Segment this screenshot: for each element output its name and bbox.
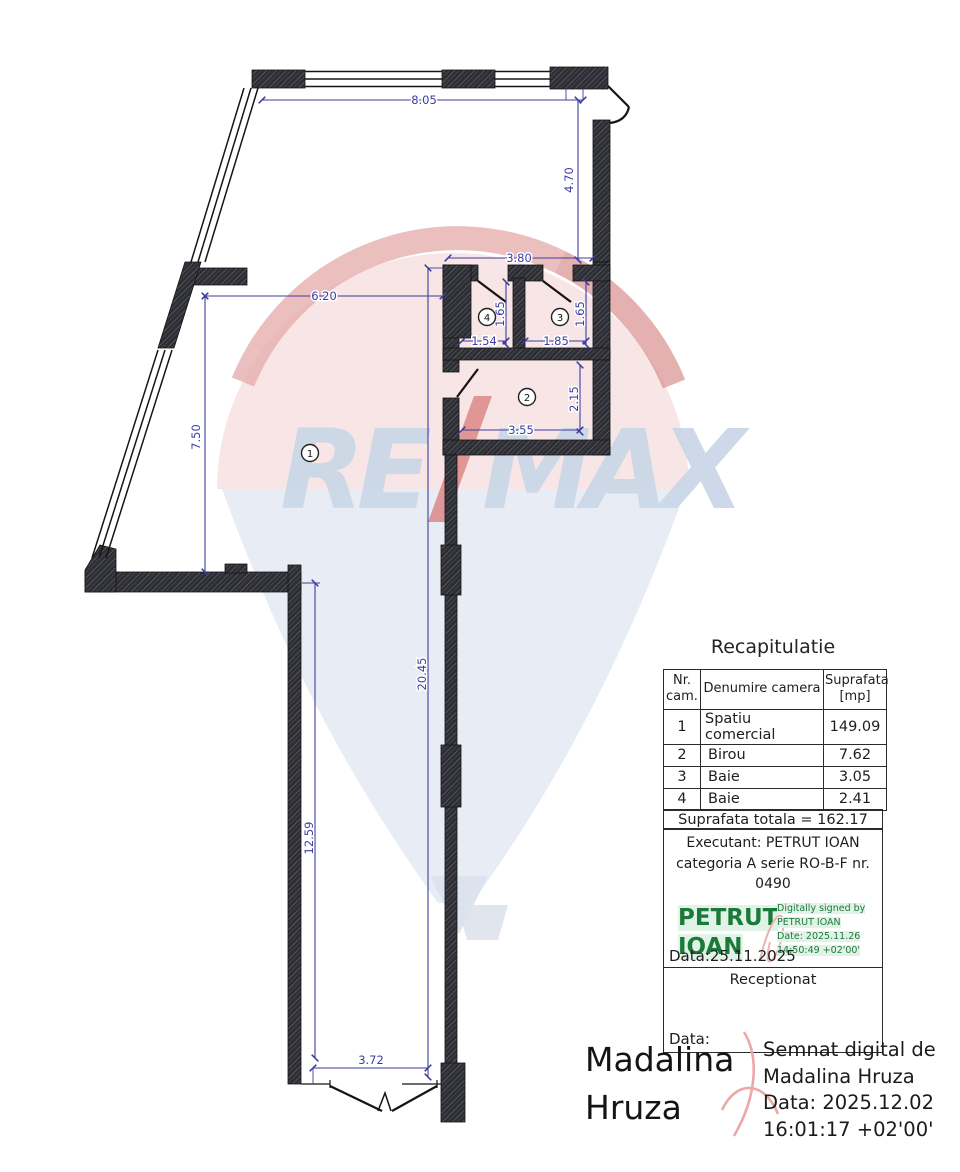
room2-label: 2 <box>524 393 530 404</box>
executant-line1: Executant: PETRUT IOAN <box>664 833 882 853</box>
row2-name: Birou <box>701 744 824 766</box>
row2-nr: 2 <box>664 744 701 766</box>
watermark-re: RE <box>280 406 431 534</box>
bottom-signature-l1: Semnat digital de <box>763 1038 936 1061</box>
dim-room1-height: 7.50 <box>189 424 203 450</box>
wall-top-mid-pier <box>442 70 495 88</box>
wall-corridor-column-2 <box>441 745 461 807</box>
recap-table-wrap: Nr. cam. Denumire camera Suprafata [mp] … <box>663 669 883 1053</box>
dim-room2-width: 3.55 <box>508 423 534 437</box>
wall-diagonal-mid <box>158 262 201 348</box>
recap-header-nr: Nr. cam. <box>664 670 701 710</box>
dim-bath3-width: 1.85 <box>543 334 569 348</box>
wall-bath-bottom <box>443 348 610 360</box>
door-top-right-leaf <box>608 86 629 107</box>
wall-bottom-left <box>85 572 301 592</box>
dim-room1-width: 6.20 <box>311 289 337 303</box>
row1-area: 149.09 <box>824 709 887 744</box>
door-entry-leaf-left <box>330 1086 382 1111</box>
wall-top-right-pier <box>550 67 608 89</box>
signature-details-l3: Date: 2025.11.26 <box>777 931 860 942</box>
door-entry-center <box>378 1093 391 1111</box>
wall-room2-bottom <box>443 440 610 455</box>
room1-label: 1 <box>307 449 313 460</box>
bottom-signature-details: Semnat digital de Madalina Hruza Data: 2… <box>763 1037 958 1143</box>
room3-label: 3 <box>557 313 563 324</box>
signature-details-l2: PETRUT IOAN <box>777 917 841 928</box>
door-top-right-arc <box>610 107 629 123</box>
row3-area: 3.05 <box>824 766 887 788</box>
executant-box: Executant: PETRUT IOAN categoria A serie… <box>663 828 883 968</box>
wall-top-left-pier <box>252 70 305 88</box>
table-row: 4 Baie 2.41 <box>664 788 887 810</box>
wall-bottom-left-bump <box>225 564 247 573</box>
wall-right-upper <box>593 120 610 262</box>
bottom-signature-name: Madalina Hruza <box>585 1036 765 1132</box>
table-row: 2 Birou 7.62 <box>664 744 887 766</box>
door-entry-leaf-right <box>392 1086 437 1111</box>
row3-name: Baie <box>701 766 824 788</box>
floorplan-document: RE MAX <box>0 0 960 1172</box>
recap-total: Suprafata totala = 162.17 <box>663 809 883 830</box>
row3-nr: 3 <box>664 766 701 788</box>
dim-corridor-left: 12.59 <box>302 822 316 855</box>
wall-bath-top-c <box>573 265 610 281</box>
bottom-signature-l4: 16:01:17 +02'00' <box>763 1118 933 1141</box>
recap-header-area: Suprafata [mp] <box>824 670 887 710</box>
wall-corridor-left <box>288 565 301 1084</box>
recap-header-row: Nr. cam. Denumire camera Suprafata [mp] <box>664 670 887 710</box>
dim-top-width: 8.05 <box>411 93 437 107</box>
recap-header-name: Denumire camera <box>701 670 824 710</box>
recap-title: Recapitulatie <box>663 636 883 658</box>
dim-bath-top: 3.80 <box>506 251 532 265</box>
bottom-signature-l2: Madalina Hruza <box>763 1065 915 1088</box>
wall-bath-divider <box>513 278 525 350</box>
dim-room2-height: 2.15 <box>567 386 581 412</box>
room4-label: 4 <box>484 313 490 324</box>
bottom-signature-l3: Data: 2025.12.02 <box>763 1091 934 1114</box>
row1-name: Spatiu comercial <box>701 709 824 744</box>
dim-corridor-right: 20.45 <box>415 658 429 691</box>
row4-name: Baie <box>701 788 824 810</box>
dim-bath4-width: 1.54 <box>471 334 497 348</box>
wall-corridor-column-3 <box>441 1063 465 1122</box>
wall-corridor-column-1 <box>441 545 461 595</box>
executant-line2: categoria A serie RO-B-F nr. 0490 <box>664 854 882 895</box>
row4-nr: 4 <box>664 788 701 810</box>
row4-area: 2.41 <box>824 788 887 810</box>
recap-table: Nr. cam. Denumire camera Suprafata [mp] … <box>663 669 887 811</box>
wall-block-left-column <box>443 265 471 338</box>
dim-bath3-height: 1.65 <box>573 301 587 327</box>
row2-area: 7.62 <box>824 744 887 766</box>
dim-corridor-width: 3.72 <box>358 1053 384 1067</box>
table-row: 3 Baie 3.05 <box>664 766 887 788</box>
row1-nr: 1 <box>664 709 701 744</box>
receptionat-title: Receptionat <box>664 972 882 988</box>
signature-details-l1: Digitally signed by <box>777 903 865 914</box>
table-row: 1 Spatiu comercial 149.09 <box>664 709 887 744</box>
executant-date: Data:25.11.2025 <box>669 947 796 965</box>
dim-right-upper: 4.70 <box>562 167 576 193</box>
door-frames <box>301 1080 441 1088</box>
balloon-basket <box>457 905 508 940</box>
